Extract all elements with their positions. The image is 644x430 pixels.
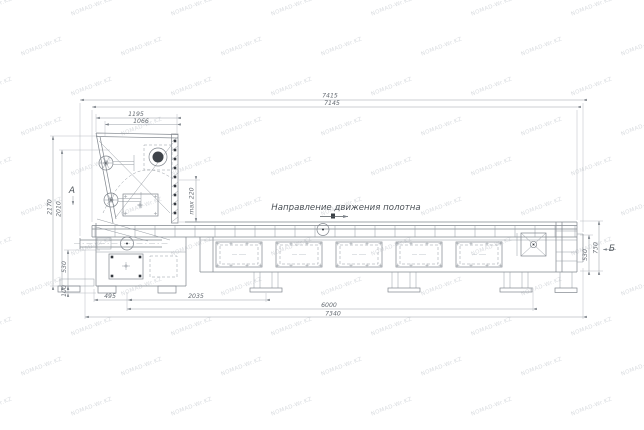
conveyor-body bbox=[92, 214, 583, 293]
foot-left bbox=[98, 286, 116, 293]
dim-belt-height-left: 530 bbox=[61, 261, 68, 273]
left-support-box bbox=[58, 223, 186, 293]
dim-right-height-inner: 530 bbox=[582, 249, 589, 261]
technical-drawing-canvas: NOMAD-Wr.KZNOMAD-Wr.KZNOMAD-Wr.KZNOMAD-W… bbox=[0, 0, 644, 430]
access-panels bbox=[216, 242, 502, 267]
dim-foot-height-left: 100 bbox=[61, 285, 68, 297]
chute bbox=[96, 219, 170, 241]
dim-height-outer: 2170 bbox=[47, 199, 54, 215]
dim-hopper-width-inner: 1066 bbox=[133, 118, 149, 125]
support-legs bbox=[250, 272, 532, 292]
belt-segment-ticks bbox=[95, 226, 575, 238]
foot-right bbox=[158, 286, 176, 293]
bolt-dots bbox=[174, 140, 177, 215]
unwinder-assembly bbox=[96, 133, 178, 241]
dim-frame-length: 6000 bbox=[321, 302, 337, 309]
dim-right-height-outer: 730 bbox=[593, 242, 600, 254]
section-label-right: Б bbox=[609, 244, 615, 254]
section-label-left: А bbox=[68, 186, 75, 196]
right-end-stand bbox=[555, 222, 583, 293]
dim-overall-width-top: 7415 bbox=[322, 93, 338, 100]
fan-unit bbox=[517, 233, 546, 256]
gearbox-panel bbox=[123, 194, 158, 216]
takeoff-bars bbox=[74, 237, 168, 250]
drawing-svg: 7415 7145 1195 1066 2170 2010 max 220 53… bbox=[0, 0, 644, 430]
belt-clamp bbox=[331, 214, 335, 219]
dim-max-note: max 220 bbox=[189, 187, 196, 214]
dim-offset-second: 2035 bbox=[188, 293, 204, 300]
dim-height-inner: 2010 bbox=[56, 201, 63, 217]
dimension-texts: 7415 7145 1195 1066 2170 2010 max 220 53… bbox=[47, 93, 616, 318]
dim-inner-width-top: 7145 bbox=[324, 100, 340, 107]
direction-note: Направление движения полотна bbox=[271, 203, 420, 213]
dim-offset-first: 495 bbox=[104, 293, 116, 300]
dim-overall-length: 7340 bbox=[325, 311, 341, 318]
dim-hopper-width-outer: 1195 bbox=[128, 111, 144, 118]
